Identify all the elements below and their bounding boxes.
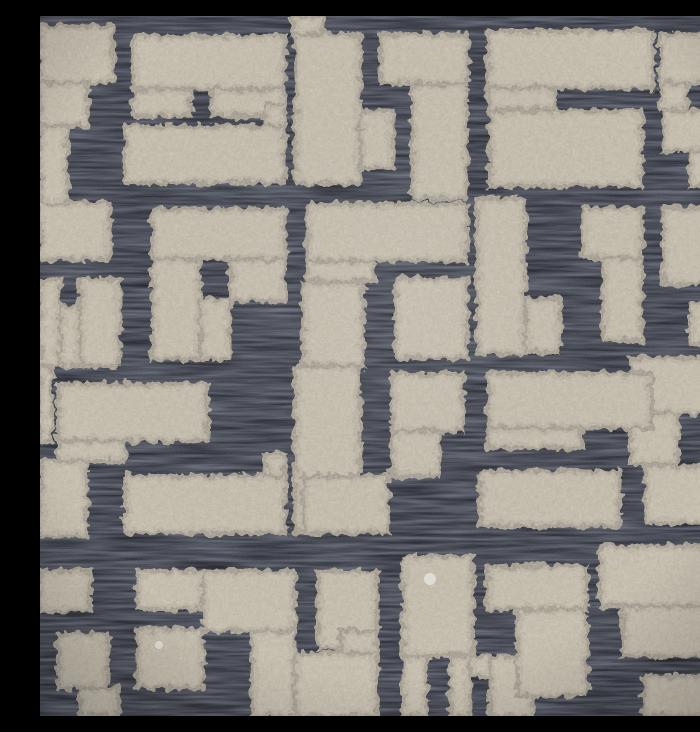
vignette-overlay <box>40 16 700 716</box>
fabric-swatch-photo <box>40 16 700 716</box>
velvet-fret-pattern <box>40 16 700 716</box>
